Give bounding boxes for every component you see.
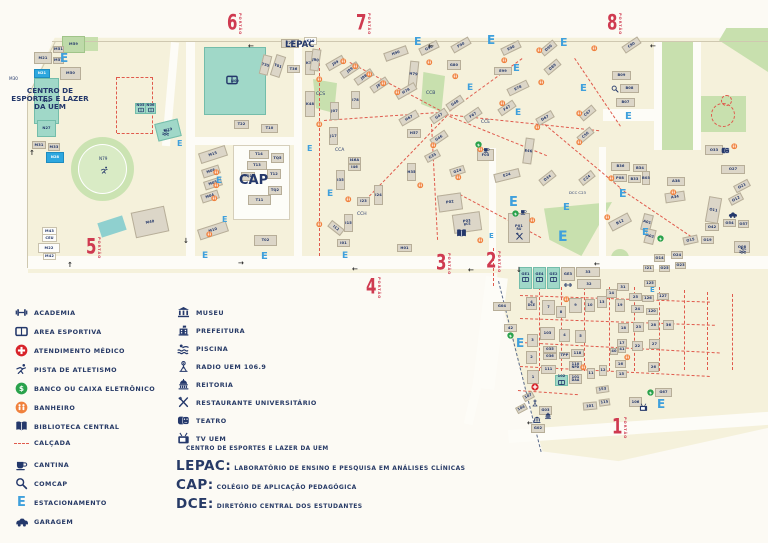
legend-item-estacionamento: EESTACIONAMENTO: [14, 496, 107, 509]
legend-item-museu: MUSEU: [176, 306, 224, 319]
legend-label: CALÇADA: [34, 439, 71, 447]
run-icon: [14, 363, 29, 376]
legend-item-banheiro: BANHEIRO: [14, 401, 75, 414]
legend-item-restaurante-universit-rio: RESTAURANTE UNIVERSITÁRIO: [176, 396, 317, 409]
legend-item-area-esportiva: AREA ESPORTIVA: [14, 325, 102, 338]
legend-label: ATENDIMENTO MÉDICO: [34, 347, 125, 355]
legend-label: PISCINA: [196, 345, 228, 353]
pref-icon: [176, 324, 191, 337]
legend-item-prefeitura: PREFEITURA: [176, 324, 245, 337]
legend-label: ACADEMIA: [34, 309, 76, 317]
legend-item-banco-ou-caixa-eletr-nico: $BANCO OU CAIXA ELETRÔNICO: [14, 382, 155, 395]
med-icon: [14, 344, 29, 357]
legend-label: RESTAURANTE UNIVERSITÁRIO: [196, 399, 317, 407]
pool-icon: [176, 342, 191, 355]
ru-icon: [176, 396, 191, 409]
campus-map-page: M59M21M51M57N21M50N22N27M31M33N28M40M43C…: [0, 0, 768, 543]
legend-item-centro-de-esportes: CENTRO DE ESPORTES E LAZER DA UEM: [186, 446, 329, 452]
legend-item-teatro: TEATRO: [176, 414, 227, 427]
abbrev-meaning: DIRETÓRIO CENTRAL DOS ESTUDANTES: [217, 503, 363, 510]
legend-label: BANHEIRO: [34, 404, 75, 412]
wc-icon: [14, 401, 29, 414]
legend-label: RADIO UEM 106.9: [196, 363, 266, 371]
theater-icon: [176, 414, 191, 427]
abbrev-meaning: LABORATÓRIO DE ENSINO E PESQUISA EM ANÁL…: [234, 465, 465, 472]
legend-item-biblioteca-central: BIBLIOTECA CENTRAL: [14, 420, 119, 433]
legend-item-reitoria: REITORIA: [176, 378, 233, 391]
legend-label: AREA ESPORTIVA: [34, 328, 102, 336]
legend-label: TEATRO: [196, 417, 227, 425]
legend-item-pista-de-atletismo: PISTA DE ATLETISMO: [14, 363, 117, 376]
legend-item-comcap: COMCAP: [14, 477, 68, 490]
$-icon: $: [14, 382, 29, 395]
dumb-icon: [14, 306, 29, 319]
legend-label: TV UEM: [196, 435, 226, 443]
abbrev: CAP:: [176, 477, 214, 493]
tv-icon: [176, 432, 191, 445]
legend-label: CANTINA: [34, 461, 69, 469]
cup-icon: [14, 458, 29, 471]
legend-item-piscina: PISCINA: [176, 342, 228, 355]
court-icon: [14, 325, 29, 338]
legend-label: BANCO OU CAIXA ELETRÔNICO: [34, 385, 155, 393]
parking-e-icon: E: [14, 496, 29, 509]
legend-label: GARAGEM: [34, 518, 73, 526]
legend-label: MUSEU: [196, 309, 224, 317]
car-icon: [14, 515, 29, 528]
dome-icon: [176, 378, 191, 391]
legend-item-academia: ACADEMIA: [14, 306, 76, 319]
legend-label: COMCAP: [34, 480, 68, 488]
abbrev-meaning: COLÉGIO DE APLICAÇÃO PEDAGÓGICA: [217, 484, 357, 491]
legend-item-garagem: GARAGEM: [14, 515, 73, 528]
legend-item-cantina: CANTINA: [14, 458, 69, 471]
museum-icon: [176, 306, 191, 319]
legend-item-cal-ada: CALÇADA: [14, 439, 71, 447]
legend-item-tv-uem: TV UEM: [176, 432, 226, 445]
abbrev: DCE:: [176, 496, 214, 512]
map-legend: ACADEMIAAREA ESPORTIVAATENDIMENTO MÉDICO…: [0, 0, 768, 543]
legend-abbrev-dce: DCE:DIRETÓRIO CENTRAL DOS ESTUDANTES: [176, 496, 363, 512]
book-icon: [14, 420, 29, 433]
legend-item-atendimento-m-dico: ATENDIMENTO MÉDICO: [14, 344, 125, 357]
legend-label: REITORIA: [196, 381, 233, 389]
svg-text:$: $: [19, 384, 24, 393]
legend-label: PISTA DE ATLETISMO: [34, 366, 117, 374]
dashed-line-icon: [14, 443, 29, 444]
legend-label: ESTACIONAMENTO: [34, 499, 107, 507]
legend-label: PREFEITURA: [196, 327, 245, 335]
legend-abbrev-cap: CAP:COLÉGIO DE APLICAÇÃO PEDAGÓGICA: [176, 477, 357, 493]
mag-icon: [14, 477, 29, 490]
abbrev: LEPAC:: [176, 458, 231, 474]
legend-label: BIBLIOTECA CENTRAL: [34, 423, 119, 431]
legend-abbrev-lepac: LEPAC:LABORATÓRIO DE ENSINO E PESQUISA E…: [176, 458, 465, 474]
legend-item-radio-uem-106-9: RADIO UEM 106.9: [176, 360, 266, 373]
radio-icon: [176, 360, 191, 373]
